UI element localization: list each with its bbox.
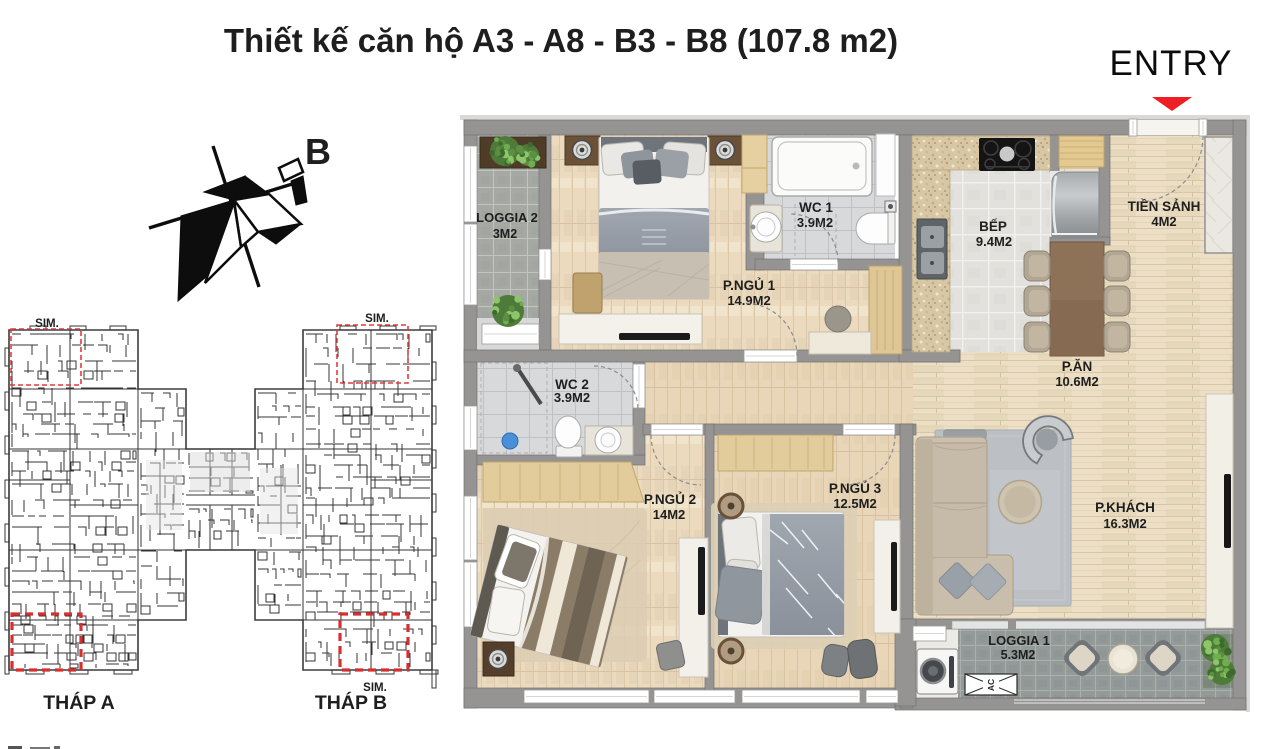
svg-text:Thiết kế căn hộ A3 - A8 - B3 -: Thiết kế căn hộ A3 - A8 - B3 - B8 (107.8…	[224, 22, 898, 59]
svg-text:TIỀN SẢNH: TIỀN SẢNH	[1128, 199, 1201, 214]
svg-text:SIM.: SIM.	[35, 318, 59, 330]
svg-text:THÁP A: THÁP A	[43, 691, 115, 714]
svg-text:12.5M2: 12.5M2	[833, 496, 876, 511]
svg-text:16.3M2: 16.3M2	[1103, 516, 1146, 531]
svg-text:LOGGIA 1: LOGGIA 1	[988, 633, 1050, 648]
svg-text:SIM.: SIM.	[365, 313, 389, 325]
svg-text:P.NGỦ 2: P.NGỦ 2	[644, 492, 696, 507]
svg-text:ENTRY: ENTRY	[1110, 44, 1233, 83]
svg-text:P.KHÁCH: P.KHÁCH	[1095, 500, 1155, 515]
svg-text:10.6M2: 10.6M2	[1055, 374, 1098, 389]
svg-text:3M2: 3M2	[493, 227, 517, 241]
svg-text:14M2: 14M2	[653, 507, 686, 522]
svg-text:WC 1: WC 1	[799, 200, 833, 215]
svg-text:3.9M2: 3.9M2	[554, 390, 590, 405]
svg-text:9.4M2: 9.4M2	[976, 234, 1012, 249]
svg-text:3.9M2: 3.9M2	[797, 215, 833, 230]
svg-text:P.NGỦ 3: P.NGỦ 3	[829, 481, 882, 496]
svg-text:P.ĂN: P.ĂN	[1062, 359, 1093, 374]
svg-text:P.NGỦ 1: P.NGỦ 1	[723, 278, 776, 293]
svg-text:BẾP: BẾP	[979, 219, 1007, 234]
svg-text:B: B	[305, 131, 331, 172]
svg-text:THÁP B: THÁP B	[315, 691, 387, 714]
svg-text:5.3M2: 5.3M2	[1001, 648, 1036, 662]
svg-text:14.9M2: 14.9M2	[727, 293, 770, 308]
svg-text:AC: AC	[986, 679, 996, 691]
svg-text:LOGGIA 2: LOGGIA 2	[476, 210, 538, 225]
svg-text:4M2: 4M2	[1151, 214, 1176, 229]
